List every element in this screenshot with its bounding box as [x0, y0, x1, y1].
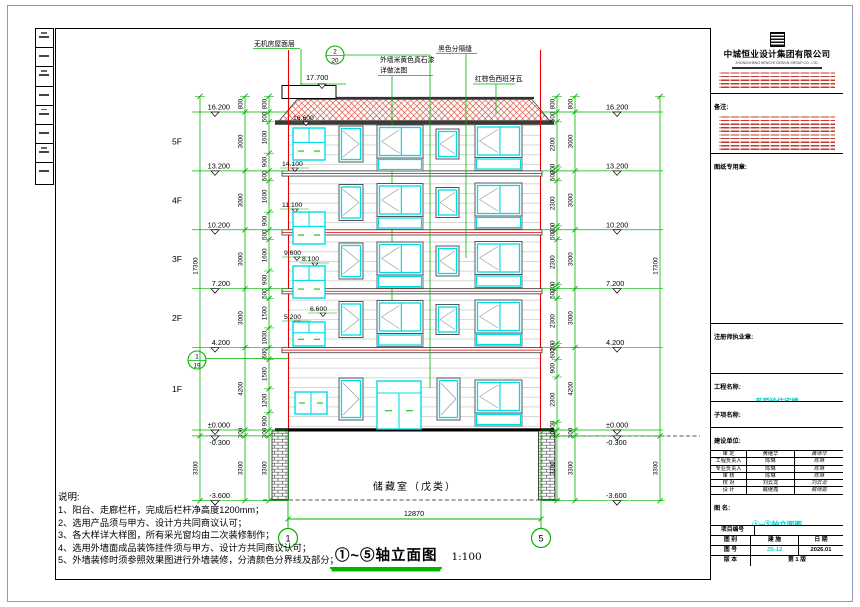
dim-label: 3300 [262, 461, 269, 475]
dim-label: 300 [550, 427, 557, 438]
window-frame [437, 378, 460, 420]
floor-label: 4F [172, 195, 182, 205]
annotation-wall-paint-2: 详做法图 [380, 66, 407, 75]
window-frame [475, 380, 522, 413]
remark-label: 备注: [714, 104, 728, 111]
storage-room-label: 储藏室（戊类） [373, 480, 457, 493]
sig-sign: 陈琳 [795, 466, 843, 473]
level-triangle-icon [613, 430, 621, 435]
figname-value: ①~⑤轴立面图 [714, 519, 840, 526]
remark-section: 备注: [711, 94, 843, 154]
note-item: 5、外墙装修时须参照效果图进行外墙装修，分清颜色分界线及部分； [58, 554, 368, 566]
drawing-title-wrap: ①~⑤轴立面图 1:100 [330, 544, 482, 569]
level-label: 10.200 [606, 220, 628, 229]
interior-level-label: 14.100 [282, 161, 303, 168]
projno-value [755, 526, 843, 535]
level-label: ±0.000 [606, 421, 628, 430]
dim-label: 300 [238, 427, 245, 438]
sig-sign: 陈琳 [795, 473, 843, 480]
window-frame [475, 183, 522, 216]
subitem-label: 子项名称: [714, 412, 741, 419]
version-label: 版 本 [711, 556, 751, 566]
dim-label: 300 [262, 427, 269, 438]
dim-label: 1500 [262, 367, 269, 381]
dim-label: 1500 [262, 306, 269, 320]
dim-label: 500 [550, 111, 557, 122]
notes-items: 1、阳台、走廊栏杆，完成后栏杆净高度1200mm；2、选用产品须与甲方、设计方共… [58, 504, 368, 566]
dim-label: 3300 [550, 461, 557, 475]
level-triangle-icon [613, 171, 621, 176]
level-triangle-icon [211, 289, 219, 294]
dim-label: 3300 [653, 461, 660, 475]
title-block: 中城恒业设计集团有限公司 ZHONGCHENG HENGYE DESIGN GR… [710, 28, 843, 580]
company-name: 中城恒业设计集团有限公司 [714, 48, 840, 60]
dim-label: 900 [262, 415, 269, 426]
level-triangle-icon [613, 348, 621, 353]
span-dim-label: 12870 [404, 509, 424, 518]
window-frame [339, 302, 363, 338]
dim-label: 3000 [238, 311, 245, 325]
dim-label: 3000 [568, 134, 575, 148]
dim-label: 800 [238, 98, 245, 109]
project-label: 工程名称: [714, 384, 741, 391]
dim-label: 1200 [262, 393, 269, 407]
level-label: 13.200 [208, 161, 230, 170]
dim-label: 2300 [550, 314, 557, 328]
level-triangle-icon [211, 430, 219, 435]
window-frame [339, 378, 363, 420]
subitem-section: 子项名称: [711, 402, 843, 428]
level-label: 13.200 [606, 161, 628, 170]
dim-label: 1600 [262, 189, 269, 203]
window-frame [377, 184, 423, 217]
stamp-section: 图纸专用章: [711, 154, 843, 324]
company-header: 中城恒业设计集团有限公司 ZHONGCHENG HENGYE DESIGN GR… [711, 28, 843, 94]
axis-number: 5 [538, 534, 543, 544]
detail-bubble-2-20-sheet: 20 [331, 58, 339, 65]
level-triangle-icon [613, 230, 621, 235]
dim-label: 3000 [568, 252, 575, 266]
note-item: 2、选用产品须与甲方、设计方共同商议认可； [58, 517, 368, 529]
level-label: 4.200 [606, 338, 624, 347]
projno-label: 项目编号 [711, 526, 755, 535]
client-section: 建设单位: 苏爱玲 [711, 428, 843, 451]
dim-label: 17300 [193, 257, 200, 275]
version-value: 第 1 版 [751, 556, 843, 566]
level-triangle-icon [211, 230, 219, 235]
drawing-sheet: 1730033008003000300030003000420030033008… [0, 0, 860, 607]
figtype-value: 建 施 [751, 536, 799, 545]
dim-label: 3000 [238, 193, 245, 207]
sig-role: 审 定 [711, 451, 747, 458]
interior-level-label: 9.600 [284, 250, 301, 257]
drawing-scale: 1:100 [451, 551, 481, 563]
dim-label: 300 [568, 427, 575, 438]
window-frame [436, 129, 459, 159]
balcony-panel [477, 218, 521, 228]
balcony-panel [379, 160, 422, 170]
window-frame [475, 242, 522, 275]
sig-role: 校 对 [711, 480, 747, 487]
sig-sign: 戴继霞 [795, 487, 843, 494]
window-frame [475, 125, 522, 158]
figno-label: 图 号 [711, 546, 751, 555]
dim-label: 2300 [550, 255, 557, 269]
machine-room-box [282, 86, 336, 99]
balcony-panel [477, 335, 521, 345]
annotation-roof-tile: 红棕色西班牙瓦 [475, 74, 523, 83]
dim-label: 2300 [550, 137, 557, 151]
dim-label: 3300 [568, 461, 575, 475]
dim-label: 500 [262, 229, 269, 240]
sig-sign: 刘云龙 [795, 480, 843, 487]
level-label: 7.200 [606, 279, 624, 288]
floor-label: 2F [172, 313, 182, 323]
note-item: 4、选用外墙面成品装饰挂件须与甲方、设计方共同商议认可； [58, 542, 368, 554]
annotation-black-joint: 黑色分隔缝 [438, 44, 472, 53]
dim-label: 900 [262, 215, 269, 226]
projno-row: 项目编号 [711, 526, 843, 536]
level-label: ±0.000 [208, 421, 230, 430]
sig-name: 陈琳 [747, 466, 795, 473]
sig-role: 设 计 [711, 487, 747, 494]
dim-label: 900 [550, 362, 557, 373]
sig-name: 黄继华 [747, 451, 795, 458]
drawing-title: ①~⑤轴立面图 [330, 544, 442, 569]
balcony-panel [477, 159, 521, 169]
level-label: 4.200 [212, 338, 230, 347]
dim-label: 3000 [238, 134, 245, 148]
dim-label: 500 [550, 288, 557, 299]
level-triangle-icon [211, 112, 219, 117]
annotation-wall-paint: 外墙米黄色真石漆 [380, 55, 435, 64]
floor-label: 3F [172, 254, 182, 264]
date-label: 日 期 [799, 536, 843, 545]
dim-label: 600 [262, 348, 269, 359]
roof-tile-hatch [279, 100, 550, 122]
dim-label: 900 [262, 274, 269, 285]
level-triangle-icon [613, 289, 621, 294]
project-section: 工程名称: 苏爱玲住宅楼 [711, 374, 843, 402]
interior-level-label: 11.100 [282, 202, 303, 209]
detail-bubble-2-20-num: 2 [333, 49, 337, 56]
sig-name: 刘云龙 [747, 480, 795, 487]
sig-name: 陈琳 [747, 458, 795, 465]
dim-label: 1600 [262, 248, 269, 262]
ridge-level-label: 17.700 [306, 73, 328, 82]
dim-label: 4200 [238, 381, 245, 395]
dim-label: 800 [568, 98, 575, 109]
interior-level-label: 8.100 [302, 256, 319, 263]
sig-role: 专业负责人 [711, 466, 747, 473]
detail-bubble-1-19-sheet: 19 [193, 363, 201, 370]
company-name-english: ZHONGCHENG HENGYE DESIGN GROUP CO., LTD. [723, 60, 830, 64]
level-label: -0.300 [209, 438, 230, 447]
figtype-row: 图 别 建 施 日 期 [711, 536, 843, 546]
dim-label: 3300 [193, 461, 200, 475]
figno-value: JS-12 [751, 546, 799, 555]
company-logo-icon [770, 32, 785, 47]
interior-level-label: 16.600 [293, 115, 314, 122]
interior-level-label: 6.600 [310, 306, 327, 313]
sig-role: 工程负责人 [711, 458, 747, 465]
dim-label: 1000 [262, 330, 269, 344]
client-label: 建设单位: [714, 438, 741, 445]
license-section: 注册师执业章: [711, 324, 843, 374]
level-label: 7.200 [212, 279, 230, 288]
level-label: 10.200 [208, 220, 230, 229]
remark-text-redacted [719, 116, 835, 150]
sig-name: 戴继霞 [747, 487, 795, 494]
window-frame [436, 246, 459, 276]
floor-label: 1F [172, 384, 182, 394]
window-frame [377, 125, 423, 158]
figname-section: 图 名: ①~⑤轴立面图 [711, 495, 843, 526]
window-frame [339, 185, 363, 221]
dim-label: 3000 [238, 252, 245, 266]
window-frame [339, 126, 363, 162]
level-triangle-icon [613, 501, 621, 506]
dim-label: 3000 [568, 311, 575, 325]
window-frame [339, 243, 363, 279]
dim-label: 600 [550, 348, 557, 359]
figname-label: 图 名: [714, 505, 730, 512]
sig-role: 审 核 [711, 473, 747, 480]
sig-sign: 黄继华 [795, 451, 843, 458]
dim-label: 2300 [550, 392, 557, 406]
basement-wall-hatch [272, 431, 289, 500]
dim-label: 500 [262, 288, 269, 299]
balcony-panel [379, 335, 422, 345]
balcony-panel [477, 415, 521, 425]
figtype-label: 图 别 [711, 536, 751, 545]
balcony-panel [379, 218, 422, 228]
interior-level-label: 5.200 [284, 314, 301, 321]
level-triangle-icon [613, 112, 621, 117]
stamp-label: 图纸专用章: [714, 164, 747, 171]
version-row: 版 本 第 1 版 [711, 556, 843, 566]
window-frame [475, 300, 522, 333]
dim-label: 500 [550, 229, 557, 240]
level-label: -3.600 [606, 491, 627, 500]
dim-label: 500 [262, 111, 269, 122]
date-value: 2026.01 [799, 546, 843, 555]
level-triangle-icon [211, 171, 219, 176]
license-label: 注册师执业章: [714, 334, 753, 341]
level-label: 16.200 [606, 102, 628, 111]
window-frame [436, 305, 459, 335]
level-triangle-icon [211, 348, 219, 353]
signature-table: 审 定黄继华黄继华工程负责人陈琳陈琳专业负责人陈琳陈琳审 核陈琳陈琳校 对刘云龙… [711, 451, 843, 495]
notes-title: 说明: [58, 492, 368, 504]
note-item: 1、阳台、走廊栏杆，完成后栏杆净高度1200mm； [58, 504, 368, 516]
dim-label: 1600 [262, 130, 269, 144]
note-item: 3、各大样详大样图，所有采光窗均由二次装修制作； [58, 529, 368, 541]
notes-block: 说明: 1、阳台、走廊栏杆，完成后栏杆净高度1200mm；2、选用产品须与甲方、… [58, 492, 368, 566]
window-frame [377, 242, 423, 275]
dim-label: 800 [550, 98, 557, 109]
balcony-panel [477, 276, 521, 286]
dim-label: 3000 [568, 193, 575, 207]
dim-label: 900 [262, 156, 269, 167]
dim-label: 2300 [550, 196, 557, 210]
sig-sign: 陈琳 [795, 458, 843, 465]
annotation-machine-roof: 无机房屋面层 [254, 39, 295, 48]
balcony-panel [379, 277, 422, 287]
window-frame [377, 301, 423, 334]
dim-label: 800 [262, 98, 269, 109]
dim-label: 3300 [238, 461, 245, 475]
level-label: 16.200 [208, 102, 230, 111]
detail-bubble-1-19-num: 1 [195, 354, 199, 361]
dim-label: 17300 [653, 257, 660, 275]
sig-name: 陈琳 [747, 473, 795, 480]
window-frame [436, 188, 459, 218]
company-address-redacted [732, 67, 822, 69]
dim-label: 500 [550, 170, 557, 181]
floor-label: 5F [172, 136, 182, 146]
figno-row: 图 号 JS-12 2026.01 [711, 546, 843, 556]
company-info-redacted [719, 70, 835, 88]
dim-label: 4200 [568, 381, 575, 395]
dim-label: 500 [262, 170, 269, 181]
